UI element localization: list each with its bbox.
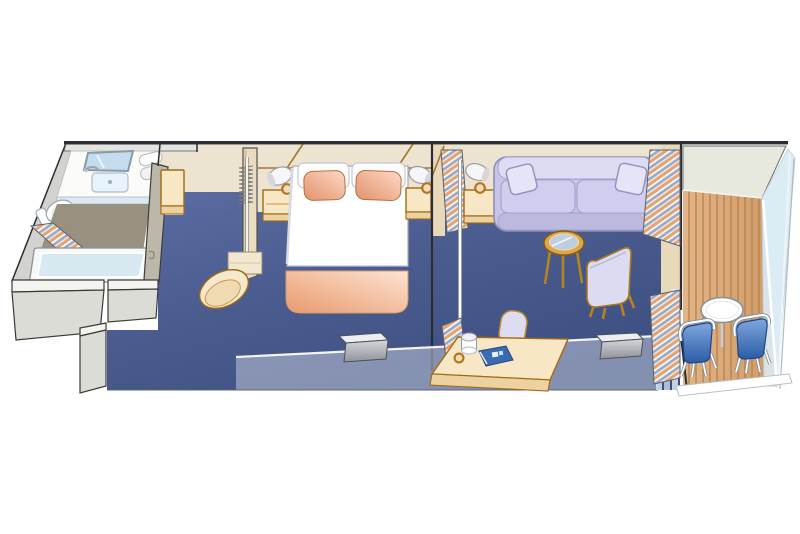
entry-wall-slab3-front <box>80 330 106 393</box>
coffee-table-glass <box>550 234 579 250</box>
bed-pillow-left <box>304 170 346 200</box>
nightstand-right-base <box>406 212 431 219</box>
sitting-tv <box>596 333 643 359</box>
bathroom-top-wall <box>64 144 197 151</box>
coffee-cup <box>462 333 477 354</box>
sink-drain <box>108 180 112 184</box>
curtain-tieback <box>455 354 464 363</box>
floorplan-canvas: Stateroom Floor Plan <box>0 0 800 534</box>
balcony-curtain-bottom <box>650 290 680 384</box>
corridor-cabinet <box>161 170 184 206</box>
bathtub-inner <box>38 253 145 277</box>
sofa <box>494 157 656 231</box>
stateroom-floorplan: Stateroom Floor Plan <box>0 0 800 534</box>
top-wall <box>64 141 788 144</box>
entry-wall-slab2-top <box>108 280 158 290</box>
balcony-curtain-top <box>643 150 680 246</box>
corridor-cabinet-base <box>161 206 184 214</box>
queen-bed <box>286 163 408 313</box>
entry-wall-slab2-front <box>108 289 158 322</box>
lamp-table-base <box>464 216 496 223</box>
bedroom-tv <box>339 333 388 362</box>
bed-blanket <box>286 271 408 313</box>
bed-pillow-right <box>355 170 401 201</box>
sofa-pillow-right <box>614 162 647 195</box>
sofa-pillow-left <box>505 163 538 196</box>
bedroom <box>263 163 434 313</box>
